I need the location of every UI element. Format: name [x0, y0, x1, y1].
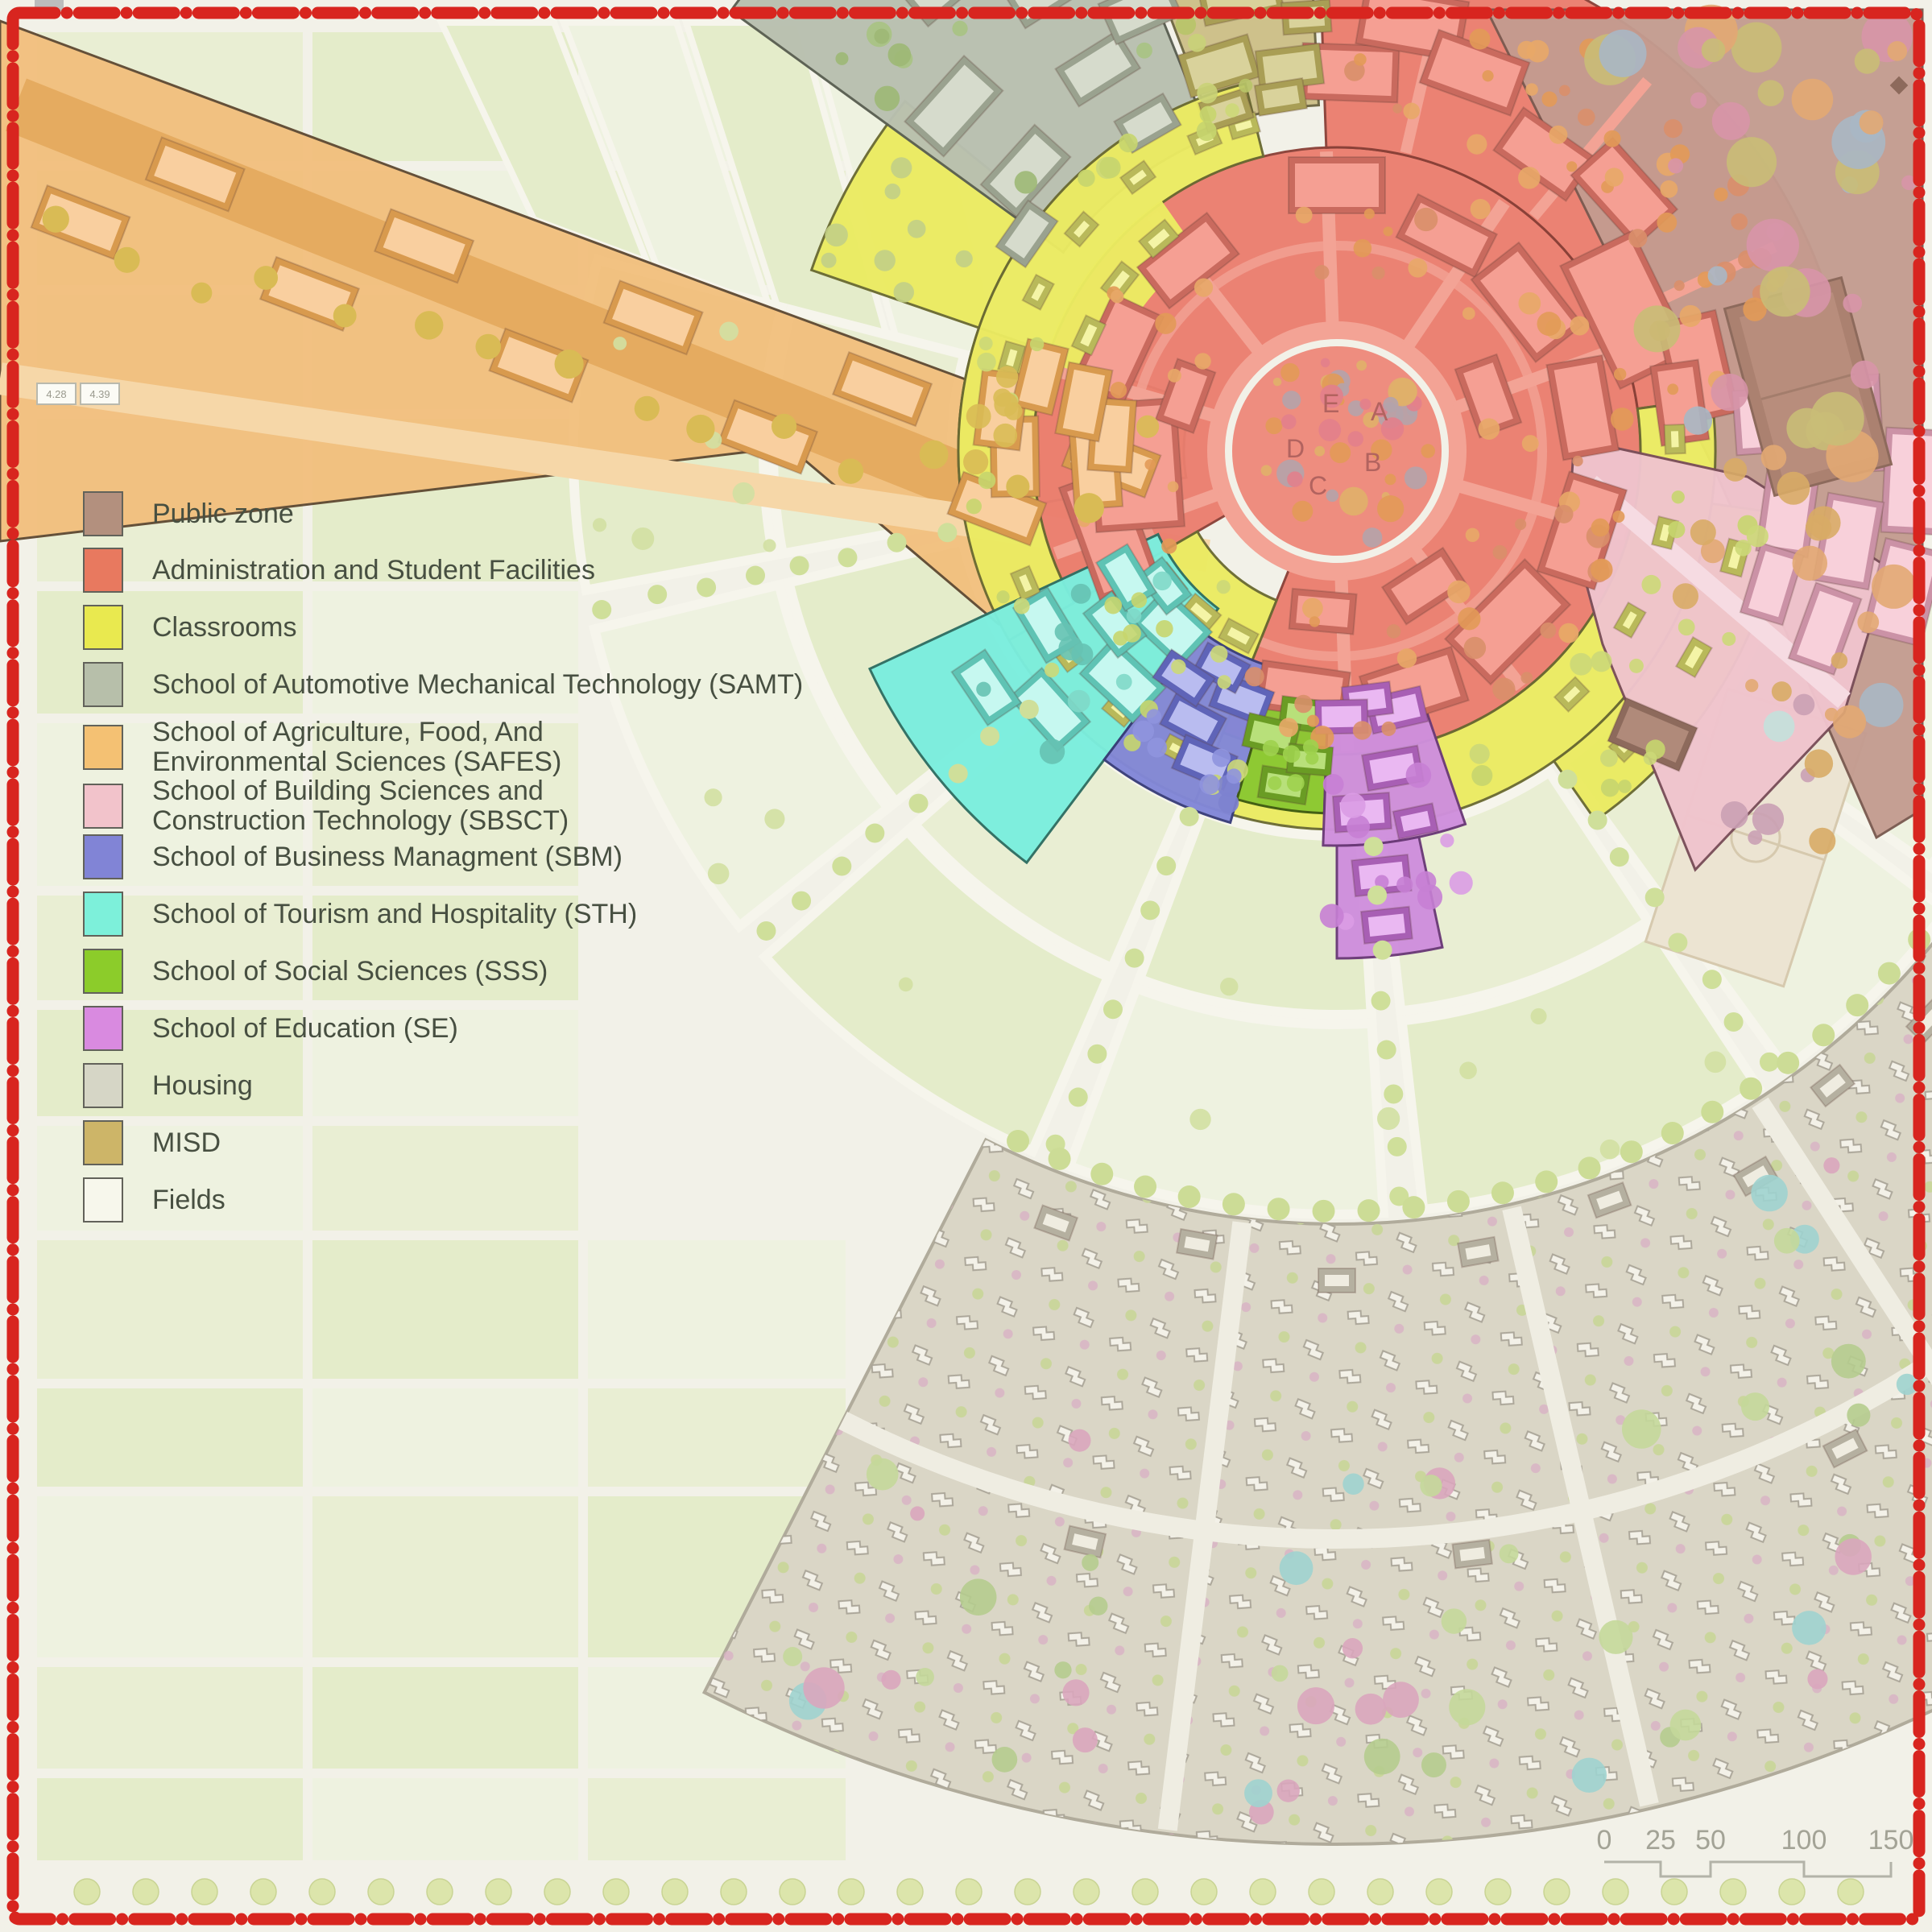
scale-tick-0: 0: [1597, 1825, 1612, 1855]
plaza-letter-c: C: [1309, 471, 1327, 500]
parcel-label-box: 4.39: [81, 383, 119, 404]
parcel-label-box: 4.28: [37, 383, 76, 404]
scale-tick-100: 100: [1781, 1825, 1827, 1855]
parcel-label: 4.39: [89, 388, 110, 400]
scale-tick-150: 150: [1868, 1825, 1914, 1855]
plaza-letter-b: B: [1364, 448, 1381, 477]
parcel-label: 4.28: [46, 388, 66, 400]
plaza-letter-a: A: [1371, 397, 1388, 426]
scale-tick-50: 50: [1695, 1825, 1726, 1855]
plaza-letter-e: E: [1322, 389, 1339, 418]
plaza-letter-d: D: [1286, 434, 1305, 463]
campus-map: E A B D C 4.28 4.39 0 25 50 100 150: [0, 0, 1932, 1932]
scale-tick-25: 25: [1645, 1825, 1676, 1855]
campus-master-plan: E A B D C 4.28 4.39 0 25 50 100 150 Publ…: [0, 0, 1932, 1932]
